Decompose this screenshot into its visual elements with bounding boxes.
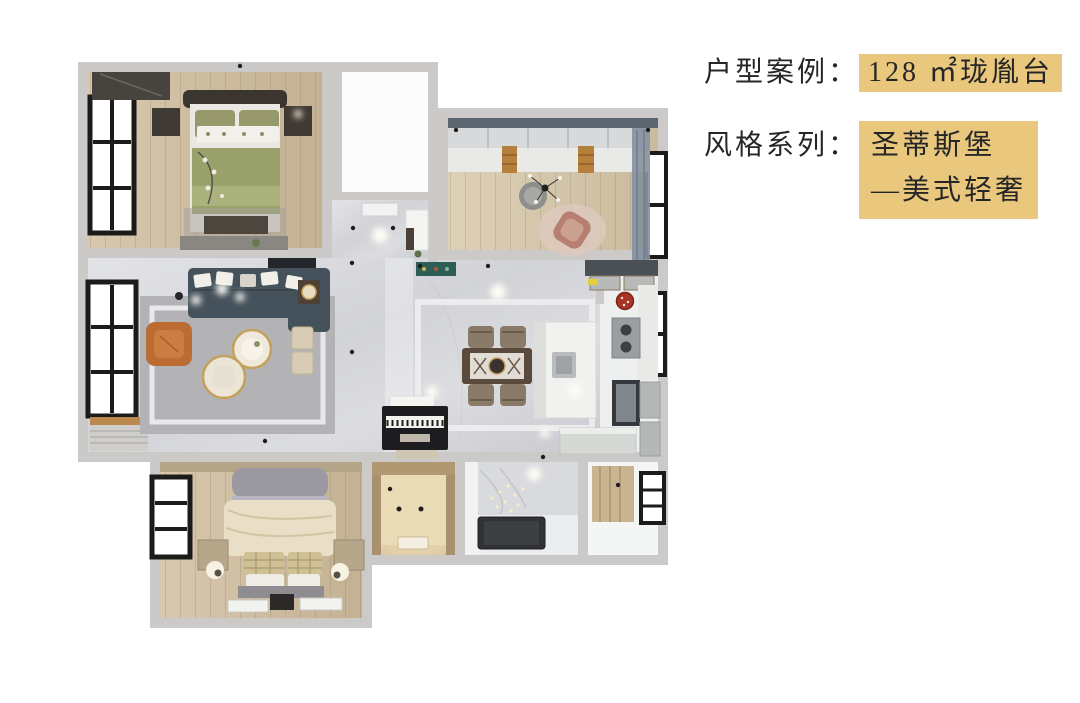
- room-closet: [372, 462, 455, 555]
- white-bathroom-floor: [342, 72, 428, 192]
- bathtub: [478, 517, 545, 549]
- ottoman: [292, 327, 313, 349]
- piano-decor: [400, 434, 430, 442]
- ceiling-light: [372, 227, 388, 243]
- ceiling-light: [540, 428, 550, 438]
- accent-chair: [146, 322, 192, 366]
- bookshelf-books: [502, 146, 517, 173]
- media-bench: [180, 236, 288, 250]
- downlight: [419, 507, 424, 512]
- plant: [415, 251, 422, 258]
- headboard-roll: [232, 468, 328, 498]
- guest-window: [152, 477, 190, 557]
- floor-lamp-shade: [175, 292, 183, 300]
- island-counter: [534, 322, 596, 418]
- floorplan-render: [0, 0, 1080, 703]
- sofa-pillow: [260, 271, 278, 286]
- wardrobe-frame: [446, 462, 455, 555]
- case-label: 户型案例：: [704, 57, 859, 88]
- centerpiece: [489, 358, 505, 374]
- kitchen-top-band: [585, 260, 658, 276]
- desk: [448, 148, 650, 172]
- piano-keys: [386, 416, 444, 428]
- upper-cabinets: [448, 128, 650, 148]
- bed-bench: [204, 216, 268, 234]
- pendant-sphere: [216, 283, 228, 295]
- ottoman: [292, 352, 313, 374]
- ceiling-light: [426, 386, 438, 398]
- dining-chair: [500, 326, 526, 348]
- plaid-pillow: [288, 552, 322, 576]
- floor-mat: [300, 598, 342, 610]
- bathroom-partition: [465, 462, 478, 555]
- duvet: [224, 500, 336, 556]
- floor-lamp: [191, 295, 201, 305]
- floor-mat: [228, 600, 268, 612]
- cabinet: [640, 422, 660, 456]
- bedside-lamp: [294, 110, 302, 118]
- floor-mat: [398, 537, 428, 549]
- fridge: [612, 380, 640, 426]
- bottom-counter: [560, 428, 636, 454]
- pillow: [246, 574, 284, 588]
- radiator-cover: [90, 425, 148, 451]
- utility-window: [641, 473, 664, 523]
- dining-chair: [500, 384, 526, 406]
- throw-blanket: [192, 186, 280, 206]
- curtain: [632, 128, 650, 280]
- yellow-item: [588, 279, 598, 285]
- case-value-highlight: 128 ㎡珑胤台: [859, 54, 1062, 92]
- wood-panel: [592, 466, 634, 522]
- stove: [612, 318, 640, 358]
- closet-back: [381, 475, 446, 545]
- window-sill: [90, 417, 146, 425]
- style-value-line2: —美式轻奢: [871, 168, 1026, 213]
- wardrobe-frame: [372, 462, 455, 475]
- ceiling-light: [490, 284, 506, 300]
- sofa-pillow: [240, 274, 256, 287]
- style-row: 风格系列：圣蒂斯堡—美式轻奢: [704, 121, 1038, 219]
- dining-chair: [468, 326, 494, 348]
- sphere-lamp: [206, 561, 224, 579]
- page: 户型案例：128 ㎡珑胤台 风格系列：圣蒂斯堡—美式轻奢: [0, 0, 1080, 703]
- counter: [638, 285, 658, 380]
- sphere-lamp: [331, 563, 349, 581]
- ceiling-light: [568, 383, 582, 397]
- pendant-sphere: [236, 293, 245, 302]
- side-table: [298, 280, 320, 304]
- downlight: [397, 507, 402, 512]
- style-value-highlight: 圣蒂斯堡—美式轻奢: [859, 121, 1038, 219]
- tv-on-floor: [270, 594, 294, 610]
- entry-shelf: [406, 228, 414, 250]
- master-bed: [183, 90, 287, 246]
- style-value-line1: 圣蒂斯堡: [871, 123, 1026, 168]
- red-plate-decor: [617, 293, 634, 310]
- style-label: 风格系列：: [704, 130, 859, 161]
- plaid-pillow: [244, 552, 284, 576]
- plant: [252, 239, 260, 247]
- wardrobe-frame: [372, 462, 381, 555]
- tv: [268, 258, 316, 268]
- master-window: [90, 97, 134, 233]
- ceiling-light: [527, 467, 541, 481]
- room-utility: [592, 466, 634, 522]
- case-row: 户型案例：128 ㎡珑胤台: [704, 50, 1062, 90]
- cabinet: [640, 382, 660, 418]
- sofa-pillow: [193, 273, 212, 288]
- nightstand: [152, 108, 180, 136]
- dining-chair: [468, 384, 494, 406]
- study-top-band: [448, 118, 658, 128]
- ac-vent: [362, 203, 398, 216]
- wardrobe: [92, 72, 170, 100]
- table-plant: [254, 341, 260, 347]
- pillow: [288, 574, 320, 588]
- bookshelf-books: [578, 146, 594, 173]
